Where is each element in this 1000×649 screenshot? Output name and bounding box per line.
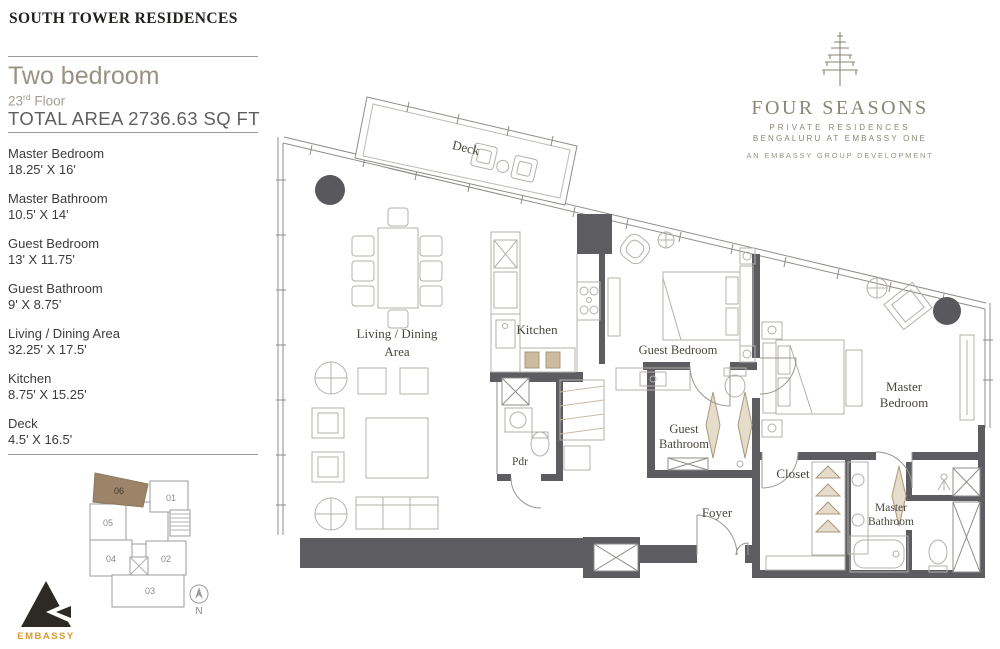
room-label-master-bed-1: Master — [886, 379, 923, 394]
room-label-guest-bath-2: Bathroom — [659, 437, 709, 451]
room-label-living-1: Living / Dining — [357, 326, 438, 341]
north-label: N — [195, 606, 202, 617]
room-label-master-bath-2: Bathroom — [868, 516, 914, 528]
unit-label-02: 02 — [161, 554, 171, 564]
unit-label-04: 04 — [106, 554, 116, 564]
floor-plan-drawing: Deck Living / Dining Area Kitchen Guest … — [0, 0, 1000, 649]
room-label-kitchen: Kitchen — [516, 322, 558, 337]
planter-circle — [933, 297, 961, 325]
floor-plan-page: SOUTH TOWER RESIDENCES Two bedroom 23rd … — [0, 0, 1000, 649]
room-label-pdr: Pdr — [512, 456, 528, 468]
embassy-logo-text: EMBASSY — [17, 631, 74, 642]
room-label-foyer: Foyer — [702, 505, 733, 520]
north-arrow-icon: N — [190, 585, 208, 617]
room-label-master-bed-2: Bedroom — [880, 395, 928, 410]
unit-label-05: 05 — [103, 518, 113, 528]
embassy-logo-icon — [21, 581, 71, 627]
room-label-guest-bedroom: Guest Bedroom — [639, 343, 718, 357]
planter-circle — [315, 175, 345, 205]
room-label-living-2: Area — [384, 344, 409, 359]
unit-label-06: 06 — [114, 486, 124, 496]
room-label-master-bath-1: Master — [875, 502, 907, 514]
unit-label-01: 01 — [166, 493, 176, 503]
room-label-closet: Closet — [776, 466, 810, 481]
room-label-guest-bath-1: Guest — [669, 422, 699, 436]
unit-label-03: 03 — [145, 586, 155, 596]
